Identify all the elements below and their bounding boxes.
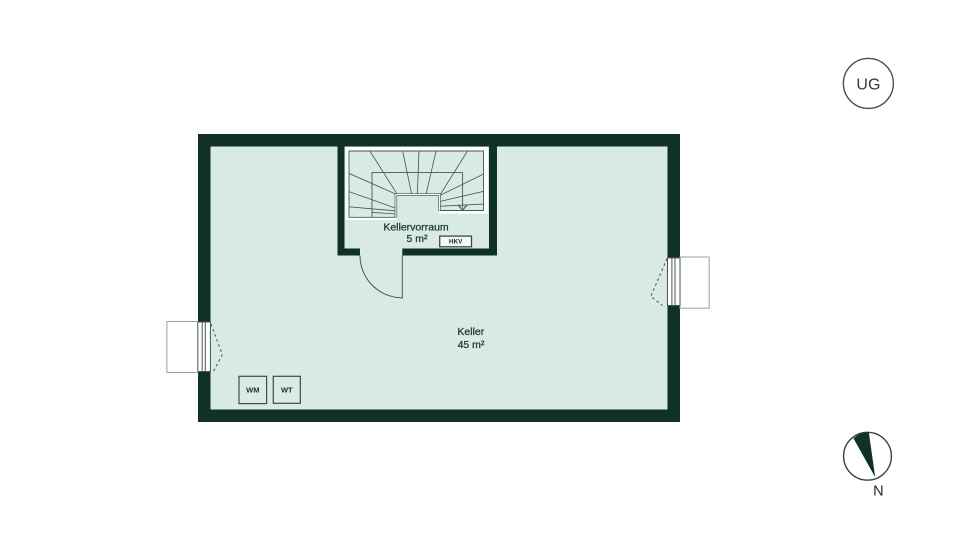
svg-text:5 m²: 5 m²	[407, 233, 429, 245]
svg-text:Kellervorraum: Kellervorraum	[383, 222, 449, 234]
svg-text:WT: WT	[281, 386, 293, 395]
svg-text:WM: WM	[246, 386, 259, 395]
svg-text:UG: UG	[856, 77, 880, 94]
svg-text:N: N	[873, 484, 883, 500]
svg-text:Keller: Keller	[457, 326, 484, 338]
svg-text:45 m²: 45 m²	[458, 339, 485, 351]
svg-text:HKV: HKV	[449, 239, 463, 246]
